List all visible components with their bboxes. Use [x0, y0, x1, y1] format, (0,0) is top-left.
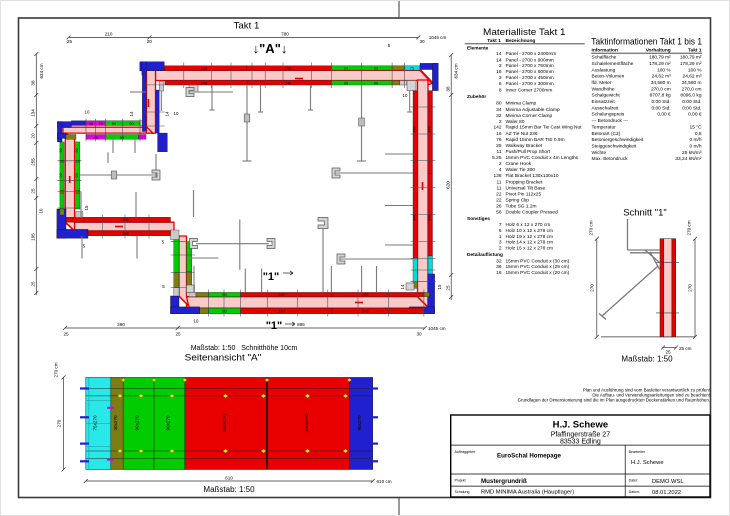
svg-text:25: 25 — [31, 281, 36, 287]
svg-text:240: 240 — [278, 293, 284, 297]
svg-text:Auftraggeber: Auftraggeber — [455, 450, 477, 454]
svg-text:620: 620 — [446, 181, 451, 189]
svg-text:240: 240 — [278, 310, 284, 314]
svg-text:0:00 Std.: 0:00 Std. — [651, 105, 670, 111]
svg-text:180,79 m²: 180,79 m² — [649, 55, 671, 61]
svg-text:Schalung: Schalung — [455, 490, 470, 494]
svg-text:25: 25 — [63, 332, 69, 337]
svg-text:Double Coupler Pressed: Double Coupler Pressed — [506, 210, 559, 216]
svg-text:270: 270 — [590, 284, 595, 292]
svg-text:20: 20 — [31, 133, 36, 139]
svg-text:Panel - 2700 x 2400mm: Panel - 2700 x 2400mm — [506, 51, 557, 57]
svg-text:Betonart (C2): Betonart (C2) — [592, 131, 621, 137]
svg-text:14: 14 — [496, 57, 502, 63]
svg-text:240: 240 — [428, 126, 432, 132]
svg-text:11: 11 — [497, 185, 502, 191]
svg-text:240: 240 — [413, 126, 417, 132]
svg-text:Rapid 15mm Bar Tie Cast Wing N: Rapid 15mm Bar Tie Cast Wing Nut — [506, 125, 583, 131]
svg-text:14: 14 — [165, 111, 170, 116]
svg-text:1045 cm: 1045 cm — [428, 326, 446, 331]
svg-text:610: 610 — [225, 476, 233, 481]
svg-text:Zubehör: Zubehör — [467, 94, 486, 100]
svg-text:Maßstab: 1:50 Schnitthöhe 10: Maßstab: 1:50 Schnitthöhe 10cm — [191, 345, 298, 352]
svg-text:Holz 10 x 12 x 278 cm: Holz 10 x 12 x 278 cm — [506, 228, 553, 234]
svg-text:195: 195 — [31, 233, 36, 241]
svg-text:885: 885 — [297, 322, 305, 327]
svg-text:34,580 m: 34,580 m — [681, 80, 701, 86]
svg-text:100 %: 100 % — [688, 67, 702, 73]
svg-text:Schalfläche: Schalfläche — [592, 55, 617, 61]
svg-text:90: 90 — [59, 173, 63, 177]
svg-text:34,580 m: 34,580 m — [651, 80, 671, 86]
svg-text:90: 90 — [344, 81, 348, 85]
svg-text:240: 240 — [201, 81, 207, 85]
svg-text:10: 10 — [85, 110, 90, 115]
svg-text:Steiggeschwindigkeit: Steiggeschwindigkeit — [592, 144, 637, 150]
svg-text:270,0 cm: 270,0 cm — [651, 86, 671, 92]
svg-text:30: 30 — [419, 39, 425, 44]
svg-text:Panel - 2700 x 750mm: Panel - 2700 x 750mm — [506, 63, 554, 69]
svg-text:Maßstab: 1:50: Maßstab: 1:50 — [621, 355, 673, 364]
svg-text:4: 4 — [499, 167, 502, 173]
svg-text:Temperatur: Temperatur — [592, 124, 617, 130]
svg-text:380: 380 — [117, 322, 125, 327]
svg-text:8707,8 kg: 8707,8 kg — [650, 93, 671, 99]
svg-text:Mustergrundriß: Mustergrundriß — [481, 478, 527, 485]
svg-text:34: 34 — [496, 107, 502, 113]
svg-text:5.25: 5.25 — [492, 155, 502, 161]
svg-text:32: 32 — [496, 113, 502, 119]
svg-text:25 cm: 25 cm — [679, 346, 692, 351]
svg-text:90: 90 — [129, 122, 133, 126]
svg-text:Beton-Volumen: Beton-Volumen — [592, 74, 625, 80]
svg-text:DEMO.WSL: DEMO.WSL — [652, 479, 684, 485]
svg-text:26: 26 — [496, 204, 502, 210]
svg-text:134: 134 — [31, 109, 36, 117]
svg-text:25 kN/m³: 25 kN/m³ — [682, 150, 702, 156]
svg-text:Datei:: Datei: — [629, 478, 638, 482]
svg-text:Tube SG 1.2m: Tube SG 1.2m — [506, 204, 537, 210]
svg-text:Wichte: Wichte — [592, 150, 607, 156]
svg-text:15mm PVC Conduit x 4m Lengths: 15mm PVC Conduit x 4m Lengths — [506, 155, 579, 161]
svg-text:Vorhaltung: Vorhaltung — [646, 48, 671, 54]
svg-text:"1": "1" — [266, 320, 283, 332]
svg-text:32: 32 — [496, 258, 502, 264]
svg-text:0,00 €: 0,00 € — [657, 112, 671, 118]
svg-text:90: 90 — [222, 310, 226, 314]
svg-text:Seitenansicht "A": Seitenansicht "A" — [185, 353, 262, 364]
svg-text:Schalelementfläche: Schalelementfläche — [592, 61, 634, 67]
svg-text:90: 90 — [374, 67, 378, 71]
svg-text:20: 20 — [147, 39, 153, 44]
svg-text:138: 138 — [493, 173, 501, 179]
svg-text:240: 240 — [362, 310, 368, 314]
svg-text:240: 240 — [201, 67, 207, 71]
svg-text:14: 14 — [129, 111, 134, 116]
svg-text:56: 56 — [496, 210, 502, 216]
svg-text:10: 10 — [38, 208, 43, 213]
svg-text:Pivot Pin 112x25: Pivot Pin 112x25 — [506, 191, 542, 197]
svg-text:634 cm: 634 cm — [39, 63, 44, 78]
svg-text:0 m/h: 0 m/h — [690, 137, 702, 143]
svg-text:15mm PVC Conduit x (20 cm): 15mm PVC Conduit x (20 cm) — [506, 270, 570, 276]
svg-text:33,24 kN/m²: 33,24 kN/m² — [675, 156, 702, 162]
svg-text:270: 270 — [57, 419, 62, 427]
svg-text:Holz 19 x 12 x 278 cm: Holz 19 x 12 x 278 cm — [506, 234, 553, 240]
svg-text:90: 90 — [222, 293, 226, 297]
svg-text:90x270: 90x270 — [357, 415, 362, 431]
svg-text:240: 240 — [362, 293, 368, 297]
svg-text:240: 240 — [413, 214, 417, 220]
svg-text:240x270: 240x270 — [222, 414, 227, 432]
svg-text:0 m/h: 0 m/h — [690, 144, 702, 150]
svg-text:Crane Hook: Crane Hook — [506, 161, 532, 167]
svg-text:Bearbeiter: Bearbeiter — [629, 450, 646, 454]
svg-text:240: 240 — [123, 218, 129, 222]
svg-text:3: 3 — [499, 240, 502, 246]
svg-text:90: 90 — [75, 173, 79, 177]
svg-text:76: 76 — [496, 137, 502, 143]
svg-text:90: 90 — [75, 148, 79, 152]
svg-text:Materialliste Takt 1: Materialliste Takt 1 — [483, 27, 566, 38]
svg-text:Max. Betondruck: Max. Betondruck — [592, 156, 629, 162]
svg-text:22: 22 — [496, 197, 502, 203]
svg-text:H.J. Schewe: H.J. Schewe — [553, 420, 608, 431]
svg-text:80: 80 — [496, 101, 502, 107]
svg-text:8096,0 kg: 8096,0 kg — [680, 93, 701, 99]
svg-text:3: 3 — [499, 63, 502, 69]
svg-text:240: 240 — [428, 214, 432, 220]
svg-text:↓"A"↓: ↓"A"↓ — [253, 41, 288, 56]
svg-text:14: 14 — [400, 284, 405, 289]
svg-text:8: 8 — [499, 87, 502, 93]
svg-text:Minima Clamp: Minima Clamp — [506, 101, 537, 107]
svg-text:Bezeichnung: Bezeichnung — [506, 38, 536, 44]
svg-text:Spring Clip: Spring Clip — [506, 197, 530, 203]
svg-text:Holz 14 x 12 x 278 cm: Holz 14 x 12 x 278 cm — [506, 240, 553, 246]
svg-text:Takt 1: Takt 1 — [688, 48, 702, 54]
svg-text:Panel - 2700 x 450mm: Panel - 2700 x 450mm — [506, 75, 554, 81]
svg-text:24,62 m³: 24,62 m³ — [683, 74, 702, 80]
svg-text:240: 240 — [123, 232, 129, 236]
svg-text:25: 25 — [67, 39, 73, 44]
svg-text:25: 25 — [496, 143, 502, 149]
svg-text:270,0 cm: 270,0 cm — [682, 86, 702, 92]
svg-text:Sonstiges: Sonstiges — [467, 216, 490, 222]
svg-text:Wandhöhe: Wandhöhe — [592, 86, 615, 92]
svg-text:3: 3 — [499, 75, 502, 81]
svg-text:2: 2 — [499, 245, 502, 251]
svg-text:90: 90 — [59, 148, 63, 152]
svg-text:Waler 80: Waler 80 — [506, 119, 525, 125]
svg-text:Schalgewicht: Schalgewicht — [592, 93, 621, 99]
svg-text:180,79 m²: 180,79 m² — [680, 55, 702, 61]
svg-text:38: 38 — [446, 86, 451, 92]
svg-text:16: 16 — [496, 69, 502, 75]
svg-text:Detailauflistung: Detailauflistung — [467, 252, 503, 258]
svg-text:Panel - 2700 x 600mm: Panel - 2700 x 600mm — [506, 69, 554, 75]
svg-text:6: 6 — [499, 81, 502, 87]
svg-text:1045 cm: 1045 cm — [429, 35, 447, 40]
svg-text:"1": "1" — [263, 271, 280, 283]
svg-text:Flat Bracket 130x130x10: Flat Bracket 130x130x10 — [506, 173, 559, 179]
svg-text:7: 7 — [499, 222, 502, 228]
svg-text:Maßstab: 1:50: Maßstab: 1:50 — [203, 485, 255, 494]
svg-text:Minima Adjustable Clamp: Minima Adjustable Clamp — [506, 107, 560, 113]
svg-text:Holz 15 x 12 x 278 cm: Holz 15 x 12 x 278 cm — [506, 245, 553, 251]
svg-text:270: 270 — [688, 284, 693, 292]
svg-text:270 cm: 270 cm — [687, 220, 692, 235]
svg-text:25: 25 — [31, 188, 36, 194]
svg-text:610 cm: 610 cm — [377, 479, 392, 484]
svg-text:90: 90 — [374, 81, 378, 85]
svg-text:634 cm: 634 cm — [454, 63, 459, 78]
svg-text:22: 22 — [496, 191, 502, 197]
svg-text:Holz 6 x 12 x 270 cm: Holz 6 x 12 x 270 cm — [506, 222, 551, 228]
svg-text:EuroSchal Homepage: EuroSchal Homepage — [497, 453, 562, 460]
svg-text:38: 38 — [31, 80, 36, 86]
svg-text:178,29 m²: 178,29 m² — [649, 61, 671, 67]
svg-text:15: 15 — [84, 205, 89, 210]
svg-text:Projekt: Projekt — [455, 478, 466, 482]
svg-text:142: 142 — [493, 125, 501, 131]
svg-text:30x270: 30x270 — [113, 415, 118, 431]
svg-text:Auslastung: Auslastung — [592, 67, 616, 73]
svg-text:0:00 Std.: 0:00 Std. — [682, 105, 701, 111]
svg-text:Push/Pull Prop Short: Push/Pull Prop Short — [506, 149, 551, 155]
svg-text:RMD MINIMA Australia (Hauptlag: RMD MINIMA Australia (Hauptlager) — [481, 490, 574, 496]
svg-text:2: 2 — [499, 161, 502, 167]
svg-text:270 cm: 270 cm — [589, 220, 594, 235]
svg-text:83533 Edling: 83533 Edling — [560, 438, 601, 445]
svg-text:15mm PVC Conduit x (30 cm): 15mm PVC Conduit x (30 cm) — [506, 258, 570, 264]
svg-text:Einsatzzeit: Einsatzzeit — [592, 99, 616, 105]
svg-text:240: 240 — [285, 67, 291, 71]
svg-text:Panel - 2700 x 300mm: Panel - 2700 x 300mm — [506, 81, 554, 87]
svg-text:75: 75 — [410, 66, 414, 70]
svg-text:AZ Tie Nut 236: AZ Tie Nut 236 — [506, 131, 538, 137]
svg-text:Datum:: Datum: — [629, 490, 641, 494]
svg-text:Walkway Bracket: Walkway Bracket — [506, 143, 543, 149]
svg-text:1: 1 — [499, 234, 502, 240]
svg-text:Takt 1: Takt 1 — [234, 21, 260, 32]
svg-text:Takt 1: Takt 1 — [487, 38, 501, 44]
svg-text:Schnitt "1": Schnitt "1" — [623, 208, 667, 219]
svg-text:Grundlagen der Dimensionierung: Grundlagen der Dimensionierung sind die … — [518, 398, 710, 403]
svg-text:178,29 m²: 178,29 m² — [680, 61, 702, 67]
svg-text:15mm PVC Conduit x (25 cm): 15mm PVC Conduit x (25 cm) — [506, 264, 570, 270]
svg-text:90x270: 90x270 — [135, 415, 140, 431]
svg-text:15 °C: 15 °C — [689, 124, 702, 130]
svg-text:100 %: 100 % — [657, 67, 671, 73]
svg-text:11: 11 — [497, 179, 502, 185]
svg-text:90: 90 — [120, 136, 124, 140]
svg-text:0:00 Std.: 0:00 Std. — [651, 99, 670, 105]
svg-text:25: 25 — [175, 332, 181, 337]
svg-text:Propping Bracket: Propping Bracket — [506, 179, 543, 185]
svg-text:--- Betondruck ---: --- Betondruck --- — [592, 118, 629, 124]
svg-text:240x270: 240x270 — [304, 414, 309, 432]
svg-text:36: 36 — [496, 264, 502, 270]
svg-text:Elemente: Elemente — [467, 46, 489, 52]
svg-text:Information: Information — [592, 48, 618, 54]
svg-text:45: 45 — [89, 122, 93, 126]
svg-text:14: 14 — [496, 51, 502, 57]
svg-text:6: 6 — [499, 228, 502, 234]
svg-text:11: 11 — [497, 149, 502, 155]
svg-text:90: 90 — [344, 67, 348, 71]
svg-text:10: 10 — [403, 93, 408, 98]
svg-text:240: 240 — [285, 81, 291, 85]
svg-text:90x270: 90x270 — [166, 415, 171, 431]
svg-text:270 cm: 270 cm — [54, 362, 59, 377]
svg-text:10: 10 — [174, 111, 179, 116]
svg-text:Betoniergeschwindigkeit: Betoniergeschwindigkeit — [592, 137, 644, 143]
svg-text:Schalungspreis: Schalungspreis — [592, 112, 625, 118]
svg-text:0,8: 0,8 — [695, 131, 702, 137]
svg-text:Inner Corner 2700mm: Inner Corner 2700mm — [506, 87, 553, 93]
svg-text:90: 90 — [112, 122, 116, 126]
svg-text:0:00 Std.: 0:00 Std. — [682, 99, 701, 105]
svg-text:08.01.2022: 08.01.2022 — [652, 490, 681, 496]
svg-text:780: 780 — [281, 32, 289, 37]
svg-text:15: 15 — [437, 284, 442, 289]
svg-text:Panel - 2700 x 900mm: Panel - 2700 x 900mm — [506, 57, 554, 63]
svg-text:75x270: 75x270 — [93, 415, 98, 431]
svg-text:25: 25 — [446, 285, 451, 291]
svg-text:Universal Tilt Base: Universal Tilt Base — [506, 185, 546, 191]
svg-text:2: 2 — [499, 119, 502, 125]
svg-text:Taktinformationen Takt 1 bis: Taktinformationen Takt 1 bis 1 — [591, 36, 702, 47]
svg-text:10: 10 — [194, 319, 199, 324]
svg-text:16: 16 — [496, 131, 502, 137]
svg-text:lfd. Meter: lfd. Meter — [592, 80, 612, 86]
svg-text:45: 45 — [98, 122, 102, 126]
svg-text:Ausschalzeit: Ausschalzeit — [592, 105, 620, 111]
svg-text:210: 210 — [105, 31, 113, 36]
svg-text:Minima Corner Clamp: Minima Corner Clamp — [506, 113, 553, 119]
svg-text:24,62 m³: 24,62 m³ — [652, 74, 671, 80]
svg-text:Waler Tie 300: Waler Tie 300 — [506, 167, 536, 173]
svg-text:Rapid 15mm BAR TIE 0.9m: Rapid 15mm BAR TIE 0.9m — [506, 137, 565, 143]
svg-text:H.J. Schewe: H.J. Schewe — [631, 460, 664, 466]
svg-text:16: 16 — [496, 270, 502, 276]
svg-text:0,00 €: 0,00 € — [688, 112, 702, 118]
svg-text:255: 255 — [31, 158, 36, 166]
svg-text:30: 30 — [416, 332, 422, 337]
